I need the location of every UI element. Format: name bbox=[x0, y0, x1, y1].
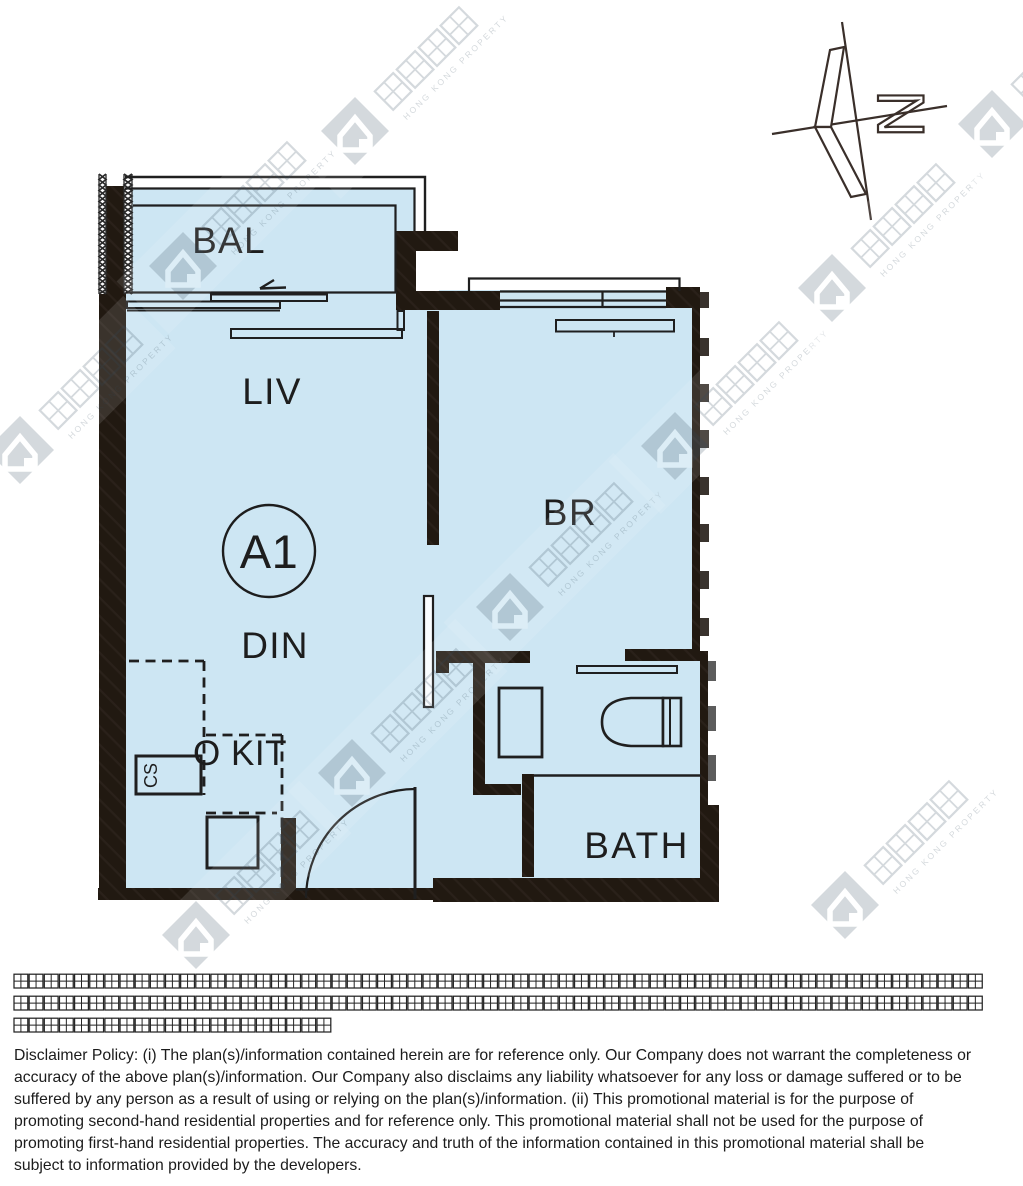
svg-text:promoting second-hand resident: promoting second-hand residential proper… bbox=[14, 1113, 924, 1130]
svg-text:DIN: DIN bbox=[241, 625, 309, 666]
svg-text:Disclaimer Policy: (i) The pla: Disclaimer Policy: (i) The plan(s)/infor… bbox=[14, 1047, 971, 1064]
svg-text:subject to information provide: subject to information provided by the d… bbox=[14, 1157, 362, 1174]
svg-text:CS: CS bbox=[141, 763, 161, 788]
svg-text:A1: A1 bbox=[240, 525, 299, 578]
svg-text:accuracy of the above plan(s)/: accuracy of the above plan(s)/informatio… bbox=[14, 1069, 962, 1086]
svg-text:BATH: BATH bbox=[584, 825, 690, 866]
svg-text:suffered by any person as a re: suffered by any person as a result of us… bbox=[14, 1091, 914, 1108]
svg-text:N: N bbox=[864, 90, 938, 138]
svg-text:LIV: LIV bbox=[242, 371, 301, 412]
svg-text:O KIT: O KIT bbox=[193, 734, 287, 773]
svg-text:promoting first-hand residenti: promoting first-hand residential propert… bbox=[14, 1135, 924, 1152]
